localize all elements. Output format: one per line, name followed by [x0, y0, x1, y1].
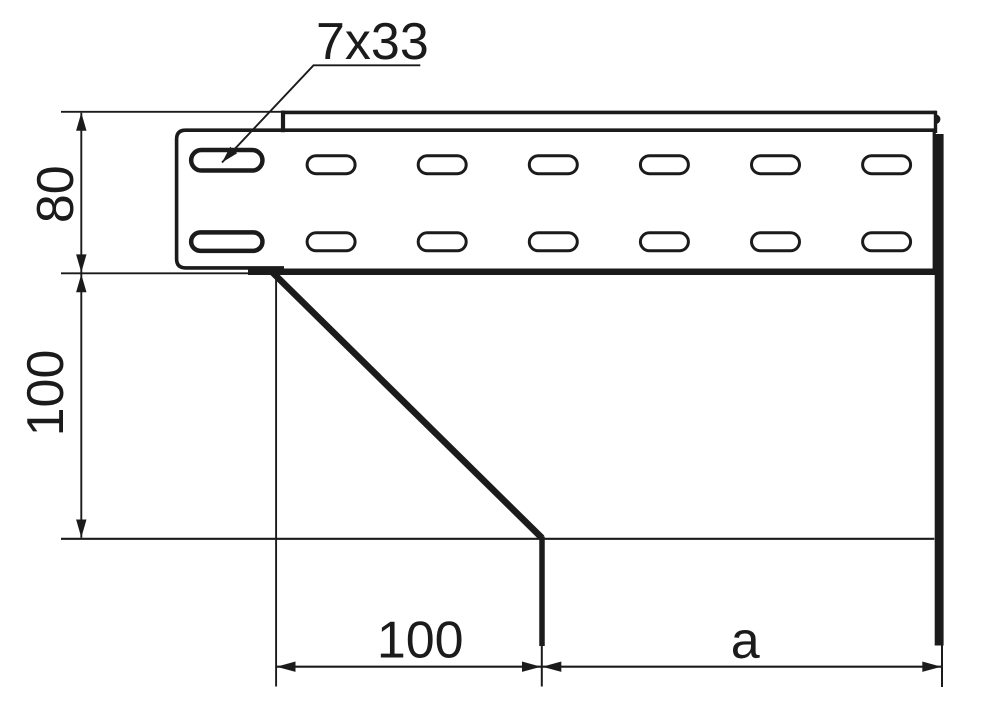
svg-text:100: 100: [377, 612, 464, 670]
svg-text:80: 80: [27, 165, 85, 223]
svg-text:100: 100: [17, 350, 75, 437]
svg-text:a: a: [731, 612, 760, 670]
svg-text:7x33: 7x33: [316, 13, 429, 71]
